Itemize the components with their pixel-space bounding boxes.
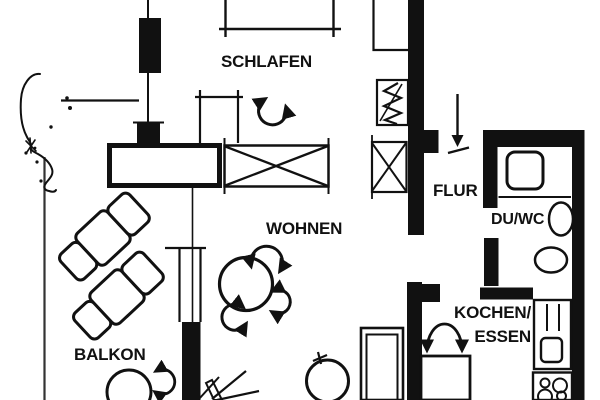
nightstand-icon	[195, 90, 243, 143]
wall-kitchen-divider	[480, 288, 533, 300]
wall-block	[137, 123, 160, 143]
tall-cabinet-icon	[361, 328, 403, 400]
wardrobe-icon	[110, 146, 220, 186]
wall-duwc-top	[483, 130, 584, 147]
wall-stub-entrance	[424, 130, 439, 153]
wall-right	[572, 130, 585, 400]
wall-center-upper	[408, 0, 424, 235]
wall-stub-kitchen	[422, 284, 440, 302]
plant-icon	[199, 371, 259, 400]
tree-dots	[24, 96, 72, 182]
window-icon	[219, 0, 341, 37]
wall-duwc-left-upper	[483, 147, 498, 208]
rotation-arrow-icon	[259, 99, 287, 125]
shower-icon	[507, 152, 543, 189]
entrance-arrow-icon	[448, 94, 469, 153]
dining-table-icon	[421, 356, 470, 400]
rotation-arrow-icon	[155, 369, 175, 394]
small-cabinet-icon	[372, 135, 407, 199]
round-table-icon	[220, 258, 273, 311]
room-label-kochen-essen: KOCHEN/ ESSEN	[440, 304, 531, 346]
round-table-icon	[107, 370, 151, 400]
room-label-balkon: BALKON	[74, 346, 146, 365]
radiator-icon	[377, 80, 408, 125]
toilet-icon	[535, 248, 567, 273]
chair-circle-icon	[307, 352, 349, 400]
closet-icon	[374, 0, 409, 50]
room-label-schlafen: SCHLAFEN	[221, 53, 312, 72]
balcony-window-icon	[165, 188, 206, 322]
room-label-duwc: DU/WC	[491, 211, 544, 229]
wall-pillar	[139, 18, 161, 73]
room-label-flur: FLUR	[433, 182, 478, 201]
tree-icon	[21, 74, 72, 192]
wall-duwc-left-lower	[484, 238, 499, 286]
room-label-wohnen: WOHNEN	[266, 220, 342, 239]
room-label-kochen-line2: ESSEN	[440, 328, 531, 347]
washbasin-icon	[549, 203, 573, 236]
bed-icon	[224, 138, 329, 194]
wall-balcony-door	[182, 322, 201, 400]
stove-icon	[533, 373, 572, 400]
room-label-kochen-line1: KOCHEN/	[440, 304, 531, 323]
floor-plan: SCHLAFEN WOHNEN BALKON FLUR DU/WC KOCHEN…	[0, 0, 600, 400]
kitchen-counter-icon	[534, 300, 571, 369]
